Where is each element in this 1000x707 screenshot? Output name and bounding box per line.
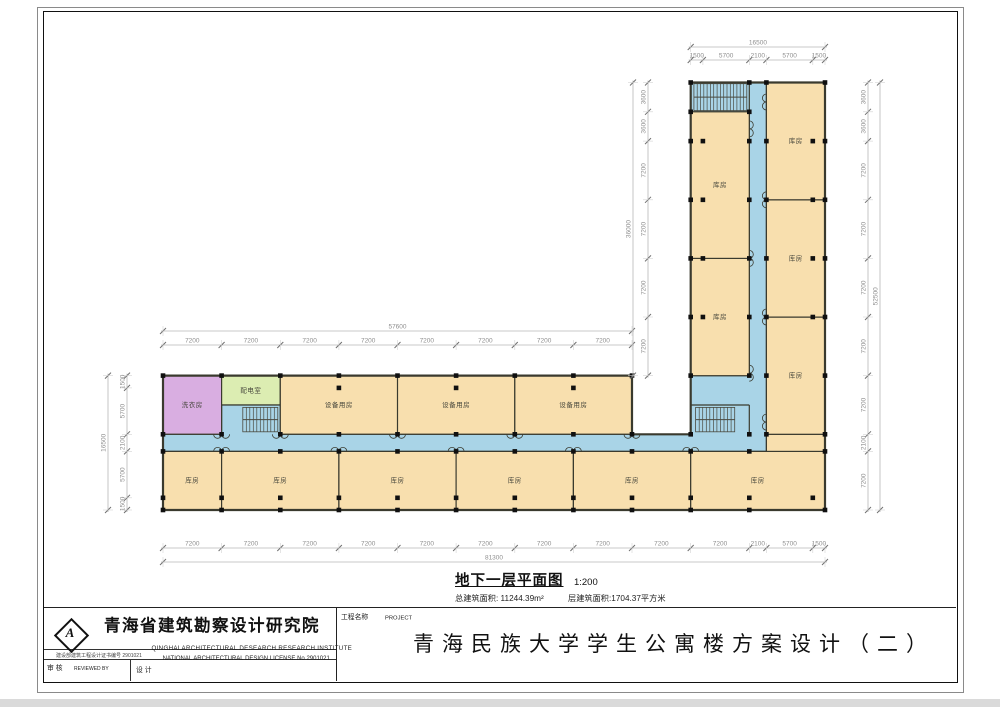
project-label-cn: 工程名称: [341, 611, 368, 621]
titleblock-top-line: [44, 607, 956, 608]
reviewed-label-cn: 审 核: [47, 662, 62, 672]
reviewed-label-en: REVIEWED BY: [74, 666, 109, 672]
project-title: 青海民族大学学生公寓楼方案设计（二）: [400, 628, 948, 658]
plan-title: 地下一层平面图: [455, 573, 564, 589]
plan-area-total: 总建筑面积: 11244.39m²: [455, 591, 544, 603]
plan-area-floor: 层建筑面积:1704.37平方米: [568, 591, 666, 603]
license-en: NATIONAL ARCHITECTURAL DESIGN LICENSE No…: [145, 655, 330, 662]
plan-caption: 地下一层平面图 1:200 总建筑面积: 11244.39m² 层建筑面积:17…: [455, 569, 687, 608]
license-cn: 建设部建筑工程设计证书编号 2901021: [56, 651, 142, 659]
institute-name-cn: 青海省建筑勘察设计研究院: [90, 612, 334, 636]
plan-scale: 1:200: [574, 577, 598, 588]
project-label-en: PROJECT: [385, 615, 412, 621]
designed-label-cn: 设 计: [136, 664, 151, 674]
logo-letter: A: [54, 625, 86, 641]
institute-logo: A: [54, 618, 86, 650]
